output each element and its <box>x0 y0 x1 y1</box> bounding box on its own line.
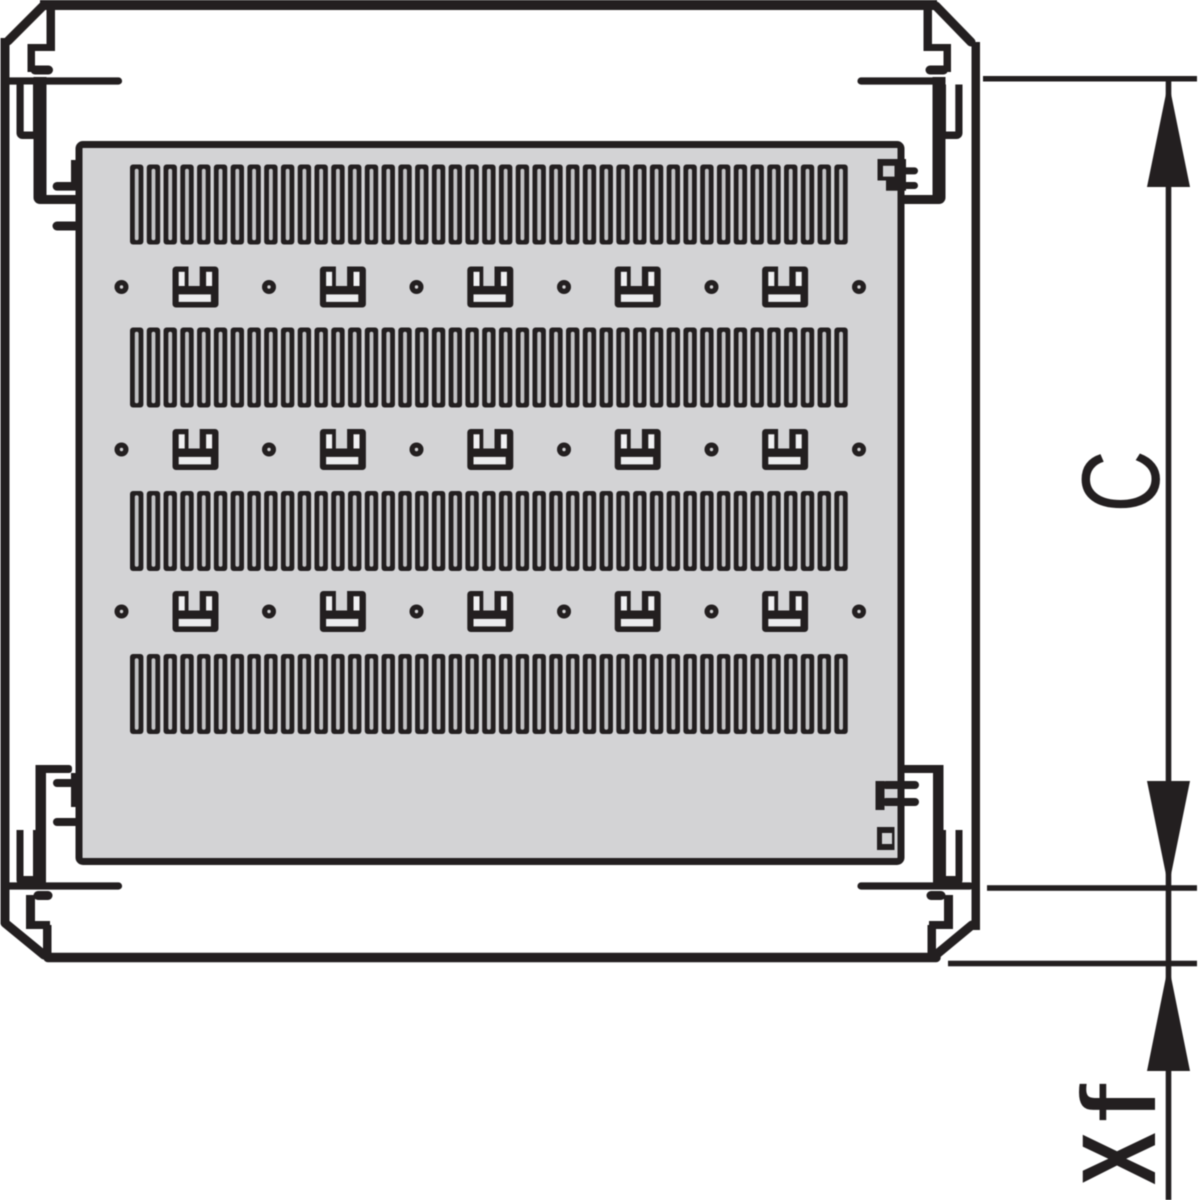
svg-text:f: f <box>1060 1083 1177 1122</box>
svg-text:C: C <box>1059 450 1183 512</box>
svg-text:X: X <box>1060 1132 1178 1185</box>
